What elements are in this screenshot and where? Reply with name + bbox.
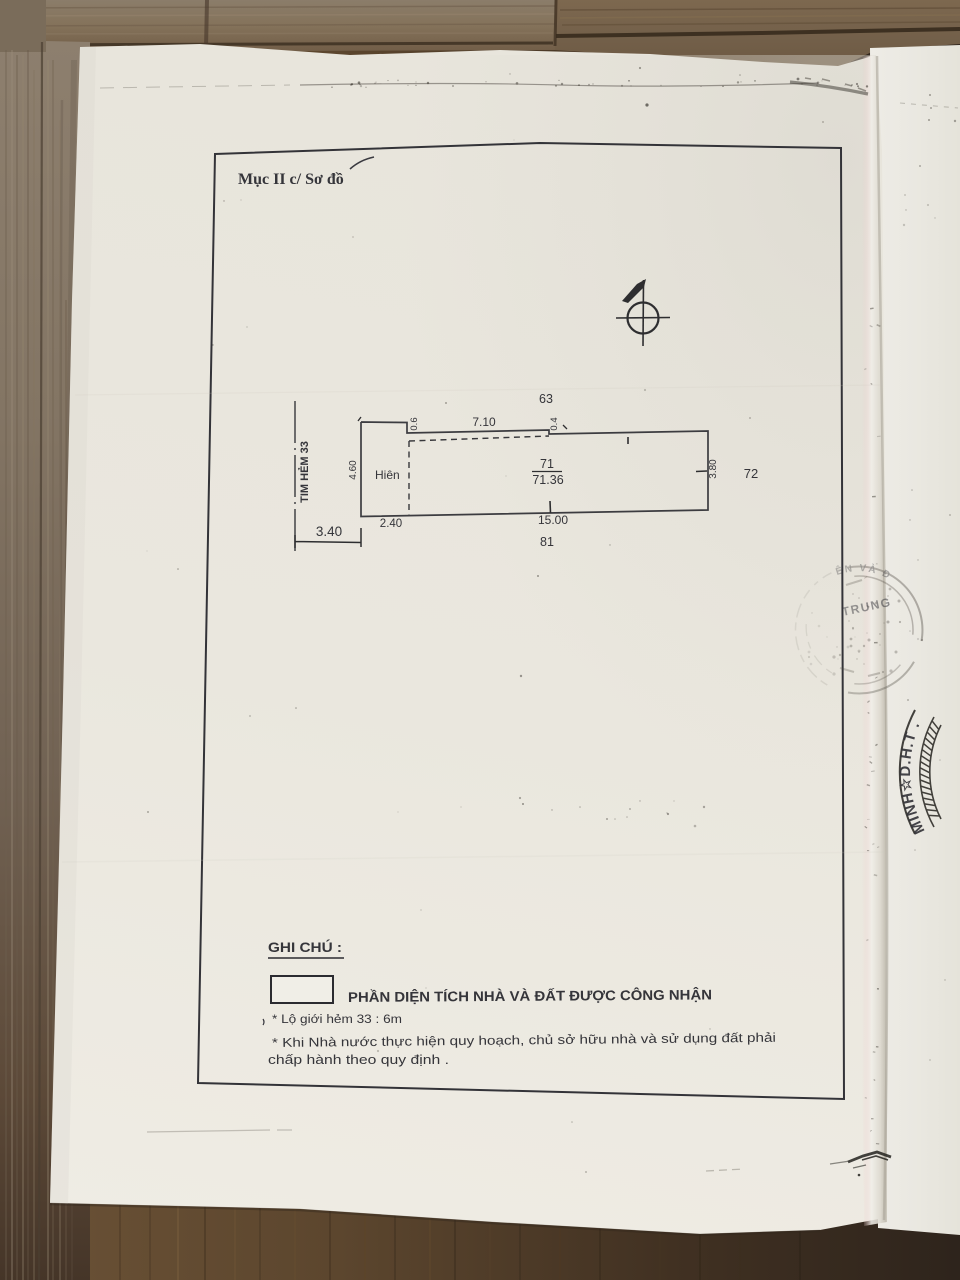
svg-text:2.40: 2.40 xyxy=(380,518,402,530)
svg-text:* Lộ giới hẻm 33 : 6m: * Lộ giới hẻm 33 : 6m xyxy=(272,1012,402,1026)
svg-text:chấp hành theo quy định .: chấp hành theo quy định . xyxy=(268,1052,449,1067)
svg-text:3.80: 3.80 xyxy=(708,459,719,479)
svg-text:Mục II c/ Sơ đồ: Mục II c/ Sơ đồ xyxy=(238,171,344,188)
svg-text:71.36: 71.36 xyxy=(532,473,563,487)
svg-text:4.60: 4.60 xyxy=(348,460,359,480)
svg-text:63: 63 xyxy=(539,392,553,406)
svg-text:3.40: 3.40 xyxy=(316,524,342,539)
svg-text:GHI CHÚ :: GHI CHÚ : xyxy=(268,940,342,955)
svg-text:15.00: 15.00 xyxy=(538,513,568,527)
svg-text:72: 72 xyxy=(744,466,758,481)
svg-text:TIM HẺM 33: TIM HẺM 33 xyxy=(298,441,311,503)
svg-text:81: 81 xyxy=(540,535,554,549)
svg-text:Hiên: Hiên xyxy=(375,468,400,482)
svg-text:0.4: 0.4 xyxy=(549,417,560,430)
svg-text:7.10: 7.10 xyxy=(472,415,496,429)
svg-text:71: 71 xyxy=(540,457,554,471)
svg-text:PHẦN DIỆN TÍCH NHÀ VÀ ĐẤT ĐƯỢC: PHẦN DIỆN TÍCH NHÀ VÀ ĐẤT ĐƯỢC CÔNG NHẬN xyxy=(348,985,712,1005)
svg-text:0.6: 0.6 xyxy=(409,417,420,430)
